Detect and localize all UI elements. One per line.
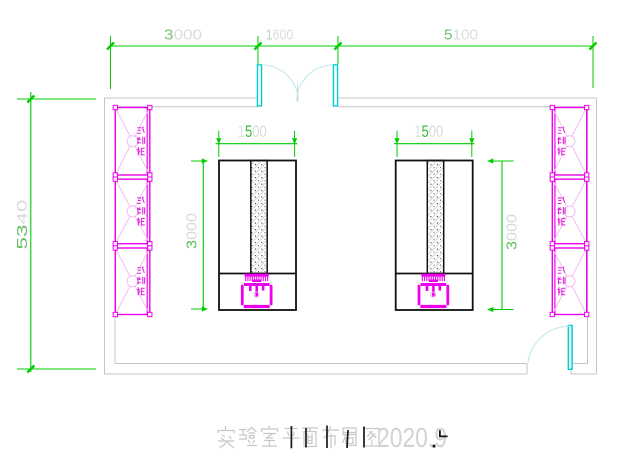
svg-text:3000: 3000 [164,27,202,44]
svg-text:3000: 3000 [183,213,200,249]
svg-text:3000: 3000 [504,214,521,250]
svg-text:5100: 5100 [444,27,478,44]
svg-text:5340: 5340 [14,200,31,250]
svg-text:1500: 1500 [238,122,267,141]
svg-text:1600: 1600 [266,27,294,44]
svg-text:1500: 1500 [414,122,443,141]
svg-text:2020.9: 2020.9 [377,422,447,453]
